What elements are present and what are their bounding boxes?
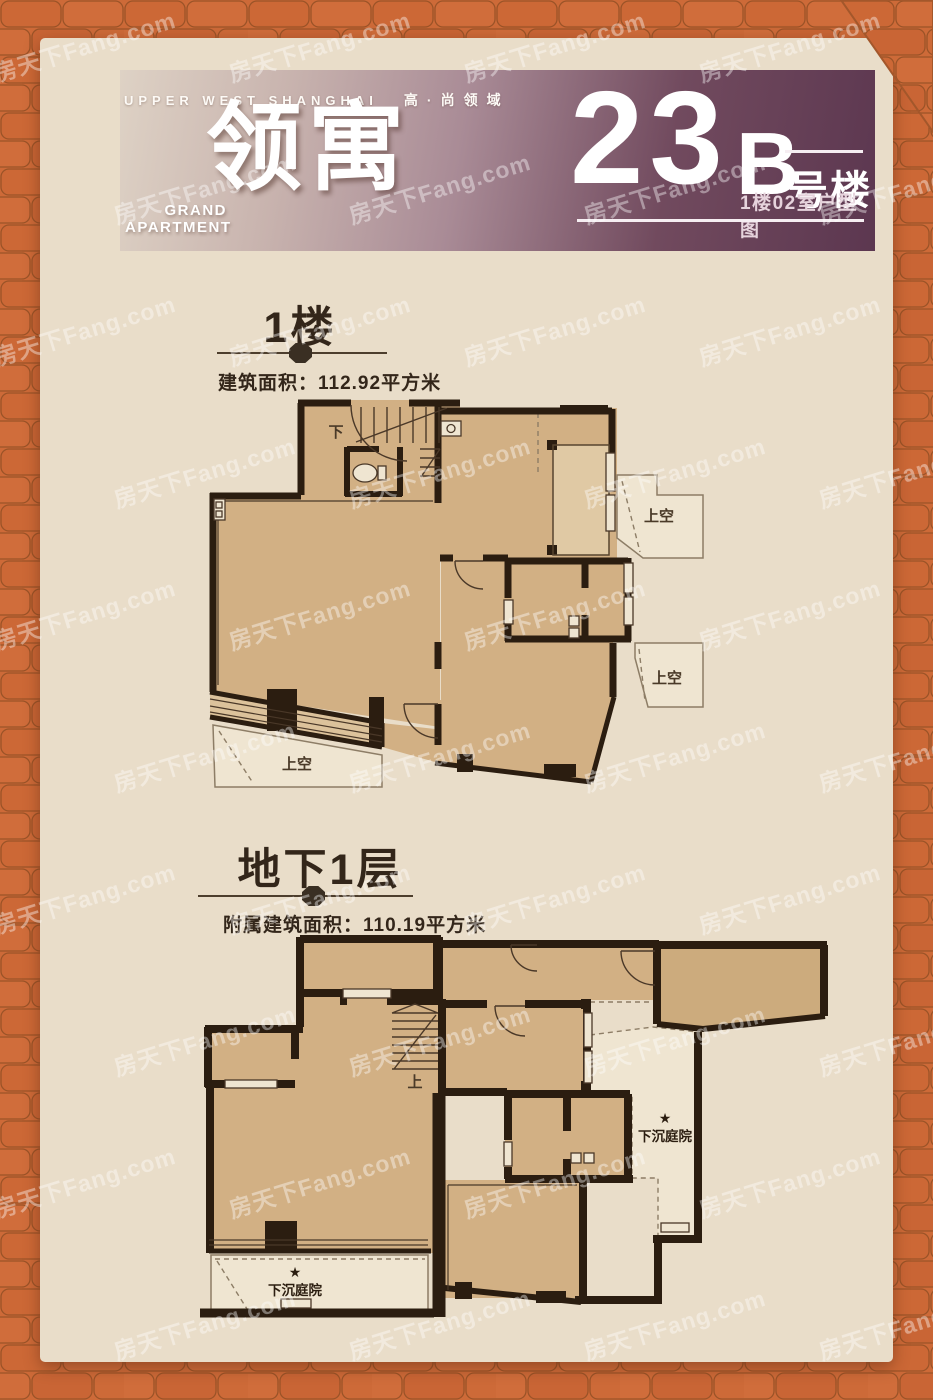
basin-icon [569,616,579,626]
sink-bowl-icon [447,425,455,433]
basin-icon [569,628,579,638]
corner-ribbon [833,0,933,140]
void-label: 上空 [282,755,312,773]
door-sill [504,600,513,624]
window-sill [584,1013,592,1047]
void-label: 上空 [644,507,674,525]
decorative-line-top [785,150,863,153]
bench-icon [281,1299,311,1308]
brand-logo-english-line2: APARTMENT [125,220,227,237]
tagline-cn: 高·尚领域 [404,92,510,108]
window-sill [343,989,391,998]
window-sill [624,563,633,593]
brand-logo-english-line1: GRAND [125,203,227,220]
header-band: UPPER WEST SHANGHAI高·尚领域 领寓 GRAND APARTM… [120,70,875,251]
poster-frame: UPPER WEST SHANGHAI高·尚领域 领寓 GRAND APARTM… [0,0,933,1400]
basement-area-label: 附属建筑面积：110.19平方米 [223,910,486,937]
floor1-divider-hexagon [289,343,312,363]
stair-direction-label: 下 [328,424,343,441]
window-sill [606,495,615,531]
window-sill [624,597,633,625]
window-sill [225,1080,277,1088]
stair-direction-label: 上 [407,1074,422,1091]
window-sill [606,453,615,491]
star-icon: ★ [659,1110,672,1126]
basement-divider-hexagon [302,886,325,906]
decorative-line-bottom [577,219,864,222]
courtyard-label: 下沉庭院 [638,1128,692,1144]
floor1-area-label: 建筑面积：112.92平方米 [218,368,441,395]
poster-card: UPPER WEST SHANGHAI高·尚领域 领寓 GRAND APARTM… [40,38,893,1362]
toilet-icon [353,464,377,482]
basin-icon [584,1153,594,1163]
floor1-plan: 下 上空 上空 上空 [195,395,725,825]
building-number: 23 [570,72,729,204]
toilet-tank-icon [378,466,386,480]
unit-caption: 1楼02室户型图 [740,188,875,242]
bench-icon [661,1223,689,1232]
void-label: 上空 [652,669,682,687]
door-sill [504,1142,512,1166]
brand-logo: 领寓 [206,96,410,202]
window-sill [584,1051,592,1083]
basin-icon [571,1153,581,1163]
basement-plan: 上 ★ 下沉庭院 ★ 下沉庭院 [195,935,835,1330]
brand-logo-english: GRAND APARTMENT [125,203,227,237]
star-icon: ★ [289,1264,302,1280]
courtyard-label: 下沉庭院 [268,1282,322,1298]
